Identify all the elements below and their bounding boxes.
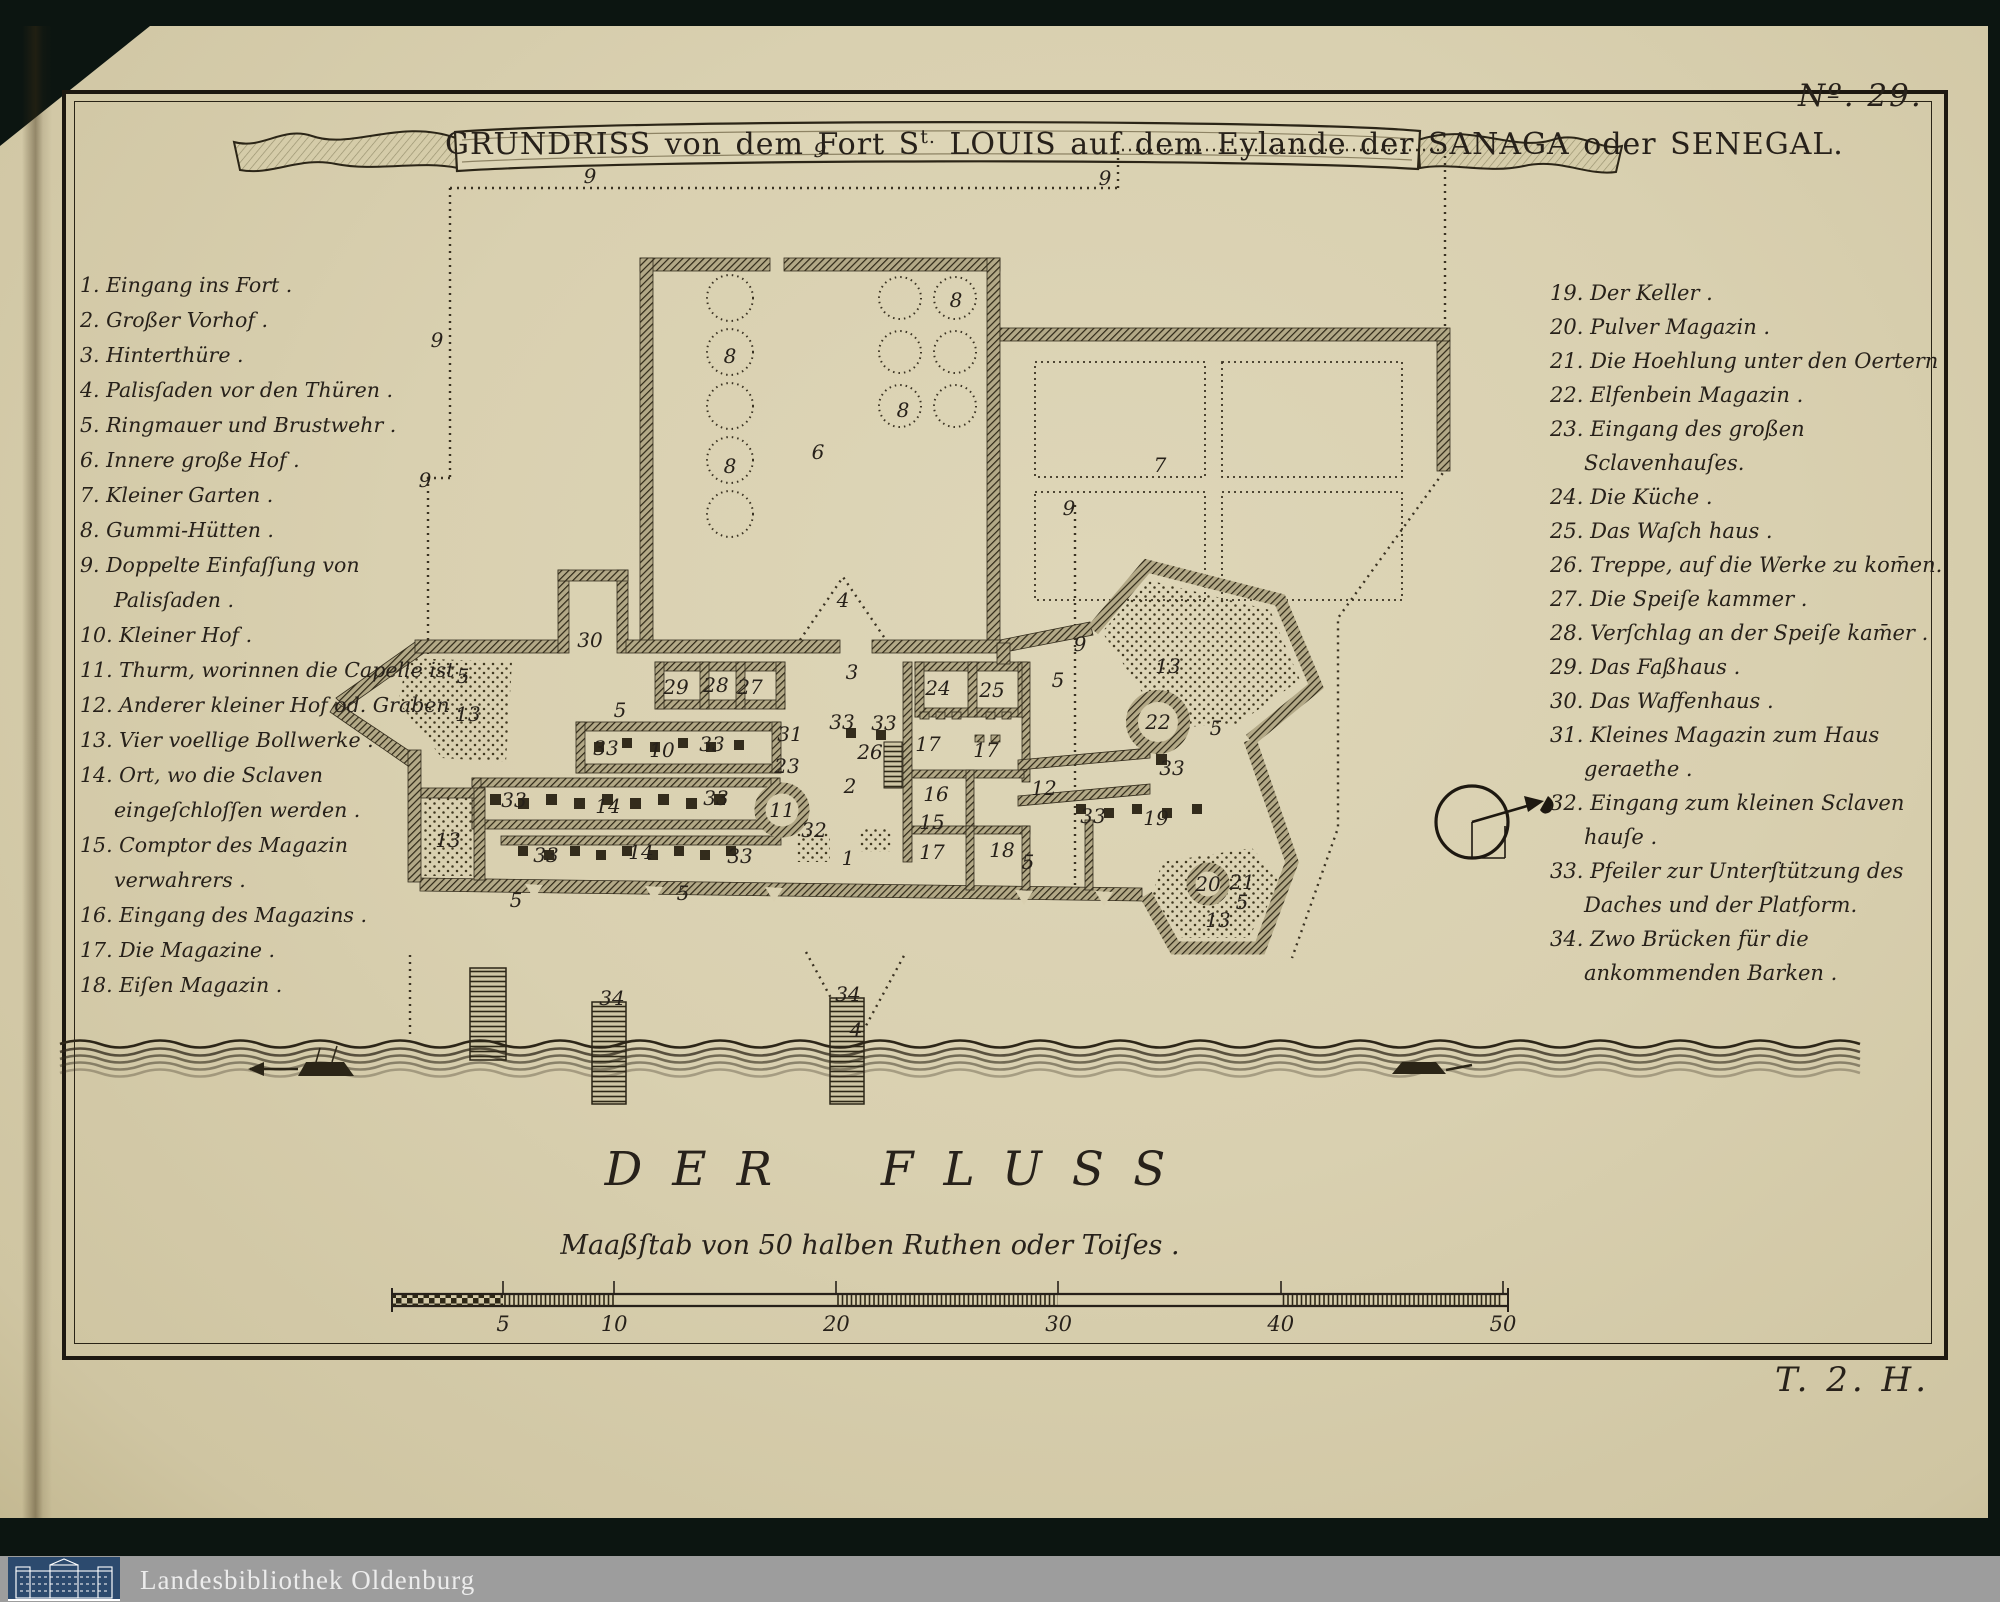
title-superscript: t. — [920, 126, 936, 148]
legend-item: 5. Ringmauer und Brustwehr . — [80, 408, 472, 443]
plan-number-label: 4 — [837, 588, 850, 612]
stair-26 — [884, 742, 902, 788]
plate-number: Nº. 29. — [1798, 78, 1923, 114]
legend-item: 12. Anderer kleiner Hof od. Graben . — [80, 688, 472, 723]
legend-item: 27. Die Speiſe kammer . — [1550, 582, 1970, 616]
plan-number-label: 17 — [973, 738, 998, 762]
plan-number-label: 17 — [919, 840, 944, 864]
scale-tick-label: 20 — [823, 1312, 850, 1336]
plan-number-label: 13 — [1205, 908, 1230, 932]
plan-number-label: 1 — [842, 846, 855, 870]
plan-number-label: 13 — [435, 828, 460, 852]
legend-item: 11. Thurm, worinnen die Capelle ist . — [80, 653, 472, 688]
legend-item: 33. Pfeiler zur Unterſtützung des Daches… — [1550, 854, 1970, 922]
plan-number-label: 5 — [1022, 850, 1035, 874]
plan-number-label: 5 — [1052, 668, 1065, 692]
legend-item: 26. Treppe, auf die Werke zu kom̄en. — [1550, 548, 1970, 582]
plan-number-label: 8 — [724, 454, 737, 478]
plan-number-label: 19 — [1143, 806, 1168, 830]
plan-number-label: 11 — [769, 798, 794, 822]
legend-item: 6. Innere große Hof . — [80, 443, 472, 478]
scale-tick-label: 5 — [496, 1312, 509, 1336]
plan-number-label: 33 — [1159, 756, 1184, 780]
plan-number-label: 8 — [950, 288, 963, 312]
plan-number-label: 5 — [614, 698, 627, 722]
plan-number-label: 9 — [814, 138, 827, 162]
legend-item: 20. Pulver Magazin . — [1550, 310, 1970, 344]
plan-number-label: 33 — [533, 843, 558, 867]
scale-tick-label: 30 — [1045, 1312, 1072, 1336]
plan-number-label: 24 — [925, 676, 950, 700]
plan-number-label: 33 — [1080, 804, 1105, 828]
legend-item: 4. Palisſaden vor den Thüren . — [80, 373, 472, 408]
compass-icon — [1436, 786, 1554, 858]
legend-item: 28. Verſchlag an der Speiſe kam̄er . — [1550, 616, 1970, 650]
legend-item: 16. Eingang des Magazins . — [80, 898, 472, 933]
plan-number-label: 9 — [1063, 496, 1076, 520]
garden-grid — [1035, 362, 1402, 600]
plan-number-label: 33 — [501, 788, 526, 812]
plan-number-label: 13 — [1155, 654, 1180, 678]
plan-number-label: 14 — [628, 840, 653, 864]
plan-number-label: 33 — [703, 786, 728, 810]
plan-number-label: 12 — [1031, 776, 1056, 800]
library-building-icon — [8, 1557, 120, 1601]
legend-item: 25. Das Waſch haus . — [1550, 514, 1970, 548]
plan-number-label: 33 — [871, 711, 896, 735]
legend-item: 30. Das Waffenhaus . — [1550, 684, 1970, 718]
legend-item: 18. Eiſen Magazin . — [80, 968, 472, 1003]
plan-number-label: 33 — [699, 732, 724, 756]
legend-item: 3. Hinterthüre . — [80, 338, 472, 373]
plan-number-label: 9 — [1074, 632, 1087, 656]
plan-number-label: 9 — [431, 328, 444, 352]
title-part2: LOUIS auf dem Eylande der SANAGA oder SE… — [949, 127, 1843, 162]
plan-number-label: 16 — [923, 782, 948, 806]
legend-left: 1. Eingang ins Fort .2. Großer Vorhof .3… — [80, 268, 472, 1003]
plan-number-label: 6 — [812, 440, 825, 464]
legend-right: 19. Der Keller .20. Pulver Magazin .21. … — [1550, 276, 1970, 990]
legend-item: 21. Die Hoehlung unter den Oertern — [1550, 344, 1970, 378]
plan-number-label: 32 — [801, 818, 826, 842]
legend-item: 1. Eingang ins Fort . — [80, 268, 472, 303]
plan-number-label: 34 — [835, 982, 860, 1006]
plan-number-label: 33 — [593, 736, 618, 760]
plan-number-label: 29 — [663, 675, 688, 699]
plan-number-label: 7 — [1154, 453, 1167, 477]
plan-number-label: 5 — [457, 664, 470, 688]
plan-number-label: 20 — [1195, 872, 1220, 896]
gummi-hut-circles — [707, 275, 976, 537]
plan-number-label: 30 — [577, 628, 602, 652]
legend-item: 9. Doppelte Einfaſſung von Palisſaden . — [80, 548, 472, 618]
plan-number-label: 13 — [455, 702, 480, 726]
plan-number-label: 9 — [1099, 166, 1112, 190]
plan-number-label: 22 — [1145, 710, 1170, 734]
plan-number-label: 31 — [777, 722, 802, 746]
legend-item: 23. Eingang des großen Sclavenhauſes. — [1550, 412, 1970, 480]
plan-number-label: 14 — [595, 794, 620, 818]
plan-number-label: 3 — [846, 660, 859, 684]
plan-number-label: 17 — [915, 732, 940, 756]
plan-number-label: 34 — [599, 986, 624, 1010]
legend-item: 15. Comptor des Magazin verwahrers . — [80, 828, 472, 898]
bridges — [470, 968, 864, 1104]
legend-item: 24. Die Küche . — [1550, 480, 1970, 514]
plan-number-label: 25 — [979, 678, 1004, 702]
legend-item: 17. Die Magazine . — [80, 933, 472, 968]
legend-item: 34. Zwo Brücken für die ankommenden Bark… — [1550, 922, 1970, 990]
library-logo — [8, 1557, 120, 1601]
plan-number-label: 33 — [727, 844, 752, 868]
plan-number-label: 9 — [419, 468, 432, 492]
plate-mark: T. 2. H. — [1775, 1360, 1930, 1400]
plan-number-label: 5 — [510, 888, 523, 912]
plan-number-label: 28 — [703, 673, 728, 697]
legend-item: 10. Kleiner Hof . — [80, 618, 472, 653]
plan-number-label: 21 — [1229, 870, 1254, 894]
scale-caption: Maaßſtab von 50 halben Ruthen oder Toiſe… — [420, 1230, 1320, 1261]
plan-number-label: 33 — [829, 710, 854, 734]
plan-number-label: 26 — [857, 740, 882, 764]
plan-number-label: 8 — [897, 398, 910, 422]
scale-tick-label: 50 — [1490, 1312, 1517, 1336]
plan-number-label: 10 — [649, 738, 674, 762]
plan-number-label: 2 — [844, 774, 857, 798]
legend-item: 29. Das Faßhaus . — [1550, 650, 1970, 684]
library-name: Landesbibliothek Oldenburg — [140, 1565, 475, 1596]
legend-item: 7. Kleiner Garten . — [80, 478, 472, 513]
legend-item: 8. Gummi-Hütten . — [80, 513, 472, 548]
plan-number-label: 23 — [774, 754, 799, 778]
scanned-book-page: { "page": { "plate_number": "Nº. 29.", "… — [0, 0, 2000, 1602]
scale-bar — [392, 1281, 1508, 1312]
plan-number-label: 4 — [850, 1018, 863, 1042]
plan-number-label: 5 — [677, 881, 690, 905]
scale-tick-label: 10 — [601, 1312, 628, 1336]
legend-item: 22. Elfenbein Magazin . — [1550, 378, 1970, 412]
legend-item: 32. Eingang zum kleinen Sclaven hauſe . — [1550, 786, 1970, 854]
legend-item: 2. Großer Vorhof . — [80, 303, 472, 338]
legend-item: 13. Vier voellige Bollwerke . — [80, 723, 472, 758]
scale-tick-label: 40 — [1267, 1312, 1294, 1336]
plan-number-label: 18 — [989, 838, 1014, 862]
plate-title: GRUNDRISS von dem Fort St. LOUIS auf dem… — [445, 126, 1430, 162]
legend-item: 19. Der Keller . — [1550, 276, 1970, 310]
legend-item: 14. Ort, wo die Sclaven eingeſchloſſen w… — [80, 758, 472, 828]
river-label: DER FLUSS — [400, 1142, 1400, 1197]
legend-item: 31. Kleines Magazin zum Haus geraethe . — [1550, 718, 1970, 786]
plan-number-label: 15 — [919, 810, 944, 834]
plan-number-label: 9 — [584, 164, 597, 188]
plan-number-label: 27 — [737, 675, 762, 699]
title-part1: GRUNDRISS von dem Fort S — [445, 127, 920, 162]
plan-number-label: 5 — [1210, 716, 1223, 740]
plan-number-label: 8 — [724, 344, 737, 368]
